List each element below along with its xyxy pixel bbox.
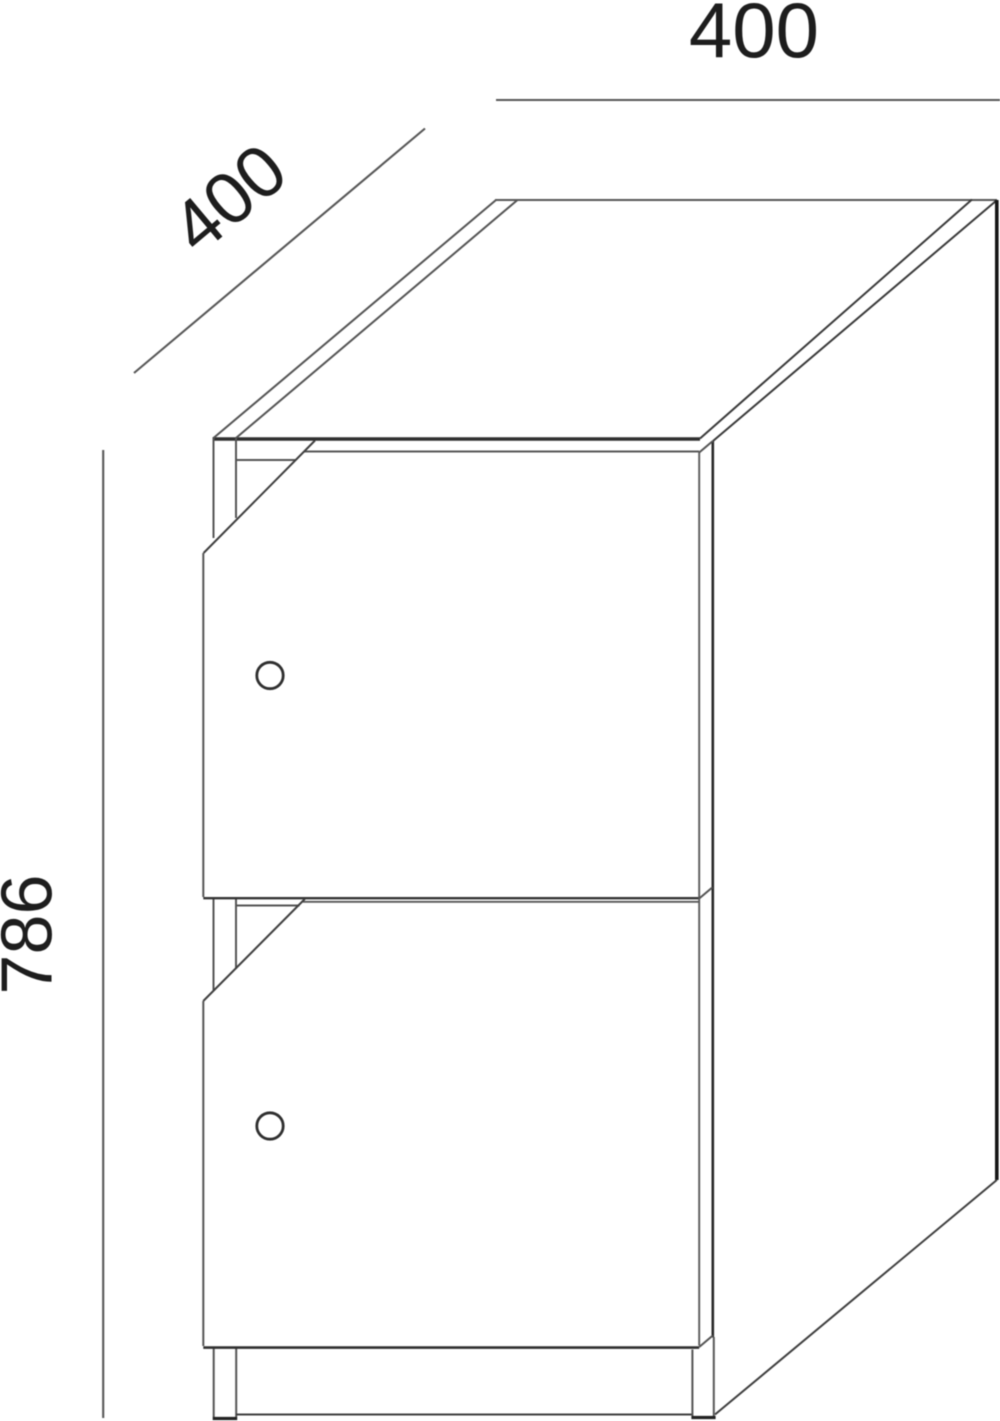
svg-text:786: 786 [0, 874, 68, 994]
svg-text:400: 400 [689, 0, 819, 74]
